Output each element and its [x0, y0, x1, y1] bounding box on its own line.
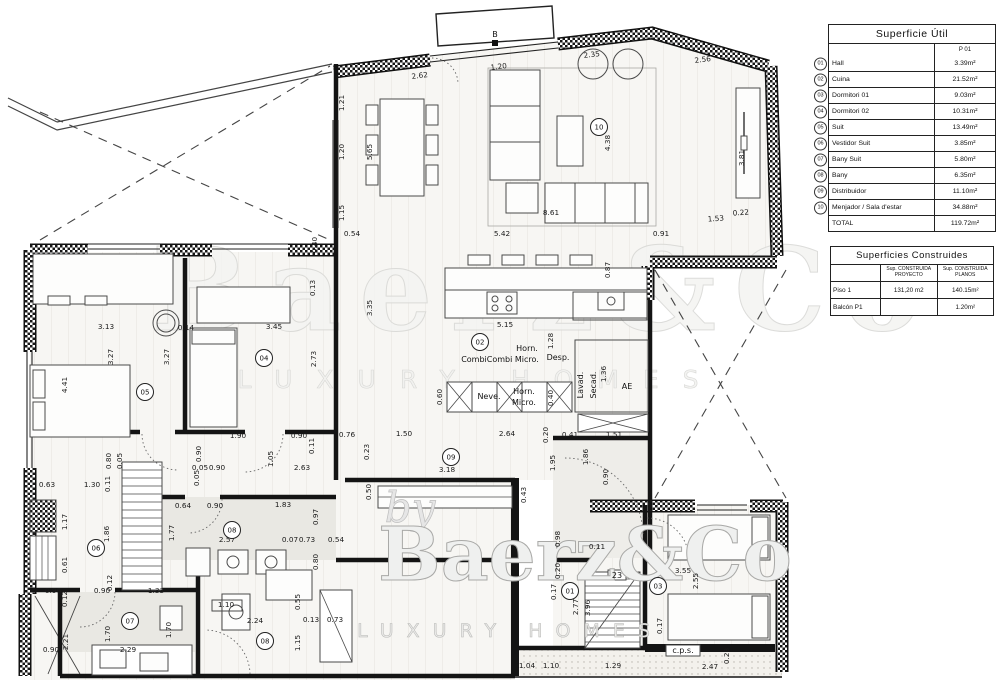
room-number-badge: 02 [814, 73, 827, 86]
dimension-label: 0.60 [435, 389, 444, 406]
dimension-label: 3.55 [675, 566, 691, 575]
column-header: Sup. CONSTRUIDA PROYECTO [880, 265, 936, 281]
room-area-cell: 9.03m² [934, 88, 995, 103]
dimension-label: 2.55 [691, 573, 700, 589]
dimension-label: 1.86 [581, 449, 590, 466]
dimension-label: 0.40 [546, 390, 555, 407]
dimension-label: 1.21 [337, 95, 346, 111]
room-area-cell: 21.52m² [934, 72, 995, 87]
dimension-label: 1.95 [548, 455, 557, 471]
dimension-label: 5.15 [497, 320, 513, 329]
fixture-label: Micro. [512, 398, 536, 407]
proyecto-cell: 131,20 m2 [880, 282, 936, 298]
dimension-label: 5.42 [494, 229, 510, 238]
room-number-label: 01 [566, 588, 575, 596]
table-row: 08Bany6.35m² [829, 167, 995, 183]
fixture-label: Desp. [547, 353, 570, 362]
tv-unit [736, 88, 760, 198]
dimension-label: 0.90 [601, 469, 610, 486]
superficie-util-table: Superficie Útil P 01 01Hall3.39m²02Cuina… [812, 24, 996, 232]
bathtub [92, 645, 192, 675]
coffee-table [557, 116, 583, 166]
dimension-label: 0.11 [103, 476, 112, 492]
dimension-label: 2.47 [702, 662, 719, 671]
table-title: Superficie Útil [829, 25, 995, 44]
fixture-label: B [492, 30, 498, 39]
dimension-label: 1.20 [337, 144, 346, 161]
dimension-label: 0.80 [311, 554, 320, 571]
dimension-label: 3.45 [266, 322, 282, 331]
fixture-label: c.p.s. [672, 646, 693, 655]
dimension-label: 8.61 [543, 208, 559, 217]
room-area-cell: 3.85m² [934, 136, 995, 151]
dimension-label: 0.55 [293, 594, 302, 610]
row-name-cell: Balcón P1 [831, 299, 880, 315]
dimension-label: 0.07 [282, 535, 299, 544]
room-name-cell: Vestidor Suit [829, 136, 934, 151]
room-number-badge: 04 [814, 105, 827, 118]
dimension-label: 0.63 [39, 480, 56, 489]
dimension-label: 0.12 [60, 591, 69, 607]
room-number-badge: 09 [814, 185, 827, 198]
dimension-label: 0.90 [94, 586, 111, 595]
dimension-label: 1.30 [84, 480, 101, 489]
dimension-label: 0.90 [43, 645, 60, 654]
room-area-cell: 3.39m² [934, 56, 995, 71]
dimension-label: 4.38 [603, 135, 612, 152]
column-header: Sup. CONSTRUIDA PLANOS [937, 265, 993, 281]
dimension-label: 3.81 [737, 150, 746, 166]
table-row: Balcón P11.20m² [831, 298, 993, 315]
room-name-cell: Cuina [829, 72, 934, 87]
dimension-label: 0.17 [655, 618, 664, 635]
room-number-label: 08 [228, 527, 237, 535]
dimension-label: 1.90 [230, 431, 247, 440]
dimension-label: 0.28 [722, 648, 731, 665]
table-row: 06Vestidor Suit3.85m² [829, 135, 995, 151]
table-row: 09Distribuidor11.10m² [829, 183, 995, 199]
room-name-cell: Dormitori 02 [829, 104, 934, 119]
dimension-label: 2.64 [499, 429, 516, 438]
watermark-tagline: LUXURY HOMES [357, 620, 663, 642]
total-row: TOTAL 119.72m² [829, 215, 995, 231]
dimension-label: 0.90 [209, 463, 226, 472]
dimension-label: 1.15 [337, 205, 346, 221]
dimension-label: 0.13 [303, 615, 320, 624]
floor-plan-page: Baerz&Co LUXURY HOMES [0, 0, 1000, 686]
dimension-label: 3.27 [162, 349, 171, 366]
fixture-label: Secad. [589, 372, 598, 399]
header-spacer [829, 44, 934, 56]
room-name-cell: Menjador / Sala d'estar [829, 200, 934, 215]
table-row: 02Cuina21.52m² [829, 71, 995, 87]
room-number-badge: 05 [814, 121, 827, 134]
dimension-label: 1.50 [396, 429, 413, 438]
dimension-label: 0.20 [541, 427, 550, 444]
dimension-label: 0.64 [175, 501, 192, 510]
dimension-label: 0.20 [553, 563, 562, 580]
dimension-label: 2.77 [571, 599, 580, 616]
dimension-label: 0.87 [603, 262, 612, 279]
room-area-cell: 6.35m² [934, 168, 995, 183]
dimension-label: 0.54 [328, 535, 345, 544]
dimension-label: 1.51 [606, 430, 622, 439]
dimension-label: 1.28 [546, 333, 555, 350]
dimension-label: 5.65 [365, 144, 374, 160]
dimension-label: 3.13 [98, 322, 115, 331]
room-number-badge: 08 [814, 169, 827, 182]
room-number-label: 09 [447, 454, 456, 462]
radiator [30, 500, 56, 580]
dimension-label: 0.76 [339, 430, 356, 439]
dimension-label: 3.18 [439, 465, 456, 474]
bedroom02-desk [197, 287, 290, 323]
table-header-row: P 01 [829, 44, 995, 56]
room-number-label: 08 [261, 638, 270, 646]
dimension-label: 0.90 [207, 501, 224, 510]
dimension-label: 2.63 [294, 463, 311, 472]
superficies-construides-table: Superficies Construides Sup. CONSTRUIDA … [830, 246, 994, 316]
fixture-label: CombiCombi Micro. [461, 355, 539, 364]
dimension-label: 0.11 [589, 542, 605, 551]
room-number-badge: 06 [814, 137, 827, 150]
room-number-label: 02 [476, 339, 485, 347]
room-number-label: 06 [92, 545, 101, 553]
bedroom02-bed [190, 328, 237, 427]
room-number-label: 05 [141, 389, 150, 397]
dimension-label: 1.15 [293, 635, 302, 651]
dimension-label: 4.41 [60, 377, 69, 393]
dimension-label: 0.40 [310, 237, 319, 254]
planos-cell: 1.20m² [937, 299, 993, 315]
room-number-label: 07 [126, 618, 135, 626]
room-area-cell: 5.80m² [934, 152, 995, 167]
room-number-badge: 10 [814, 201, 827, 214]
room-number-label: 10 [595, 124, 604, 132]
room-name-cell: Bany Suit [829, 152, 934, 167]
header-spacer [831, 265, 880, 281]
table-body: 01Hall3.39m²02Cuina21.52m²03Dormitori 01… [829, 56, 995, 215]
dimension-label: 1.83 [275, 500, 292, 509]
table-row: 05Suit13.49m² [829, 119, 995, 135]
table-row: 07Bany Suit5.80m² [829, 151, 995, 167]
dimension-label: 1.77 [167, 525, 176, 542]
dimension-label: 0.05 [192, 470, 201, 486]
dimension-label: 2.29 [120, 645, 137, 654]
dimension-label: 1.70 [103, 626, 112, 643]
total-value: 119.72m² [934, 216, 995, 231]
dimension-label: 0.91 [653, 229, 669, 238]
room-area-cell: 13.49m² [934, 120, 995, 135]
planos-cell: 140.15m² [937, 282, 993, 298]
dimension-label: 0.17 [549, 584, 558, 601]
room-area-cell: 10.31m² [934, 104, 995, 119]
room-number-badge: 01 [814, 57, 827, 70]
dimension-label: 2.21 [61, 634, 70, 650]
dimension-label: 0.11 [307, 438, 316, 454]
dimension-label: 0.73 [327, 615, 344, 624]
room-name-cell: Distribuidor [829, 184, 934, 199]
table-row: 03Dormitori 019.03m² [829, 87, 995, 103]
room-name-cell: Bany [829, 168, 934, 183]
dimension-label: 1.29 [605, 661, 622, 670]
dimension-label: 0.96 [45, 586, 62, 595]
dimension-label: 0.98 [553, 531, 562, 548]
dimension-label: 0.97 [311, 509, 320, 526]
room-area-cell: 34.88m² [934, 200, 995, 215]
room-name-cell: Hall [829, 56, 934, 71]
wall-marker [492, 40, 498, 46]
dimension-label: 1.04 [519, 661, 536, 670]
dimension-label: 0.13 [308, 280, 317, 297]
dimension-label: 0.43 [519, 487, 528, 504]
dimension-label: 0.73 [299, 535, 316, 544]
fixture-label: Horn. [513, 387, 535, 396]
room-number-label: 04 [260, 355, 269, 363]
table-title: Superficies Construides [831, 247, 993, 265]
dimension-label: 2.73 [309, 351, 318, 368]
dimension-label: 1.70 [164, 622, 173, 639]
dimension-label: 1.33 [148, 586, 165, 595]
column-header: P 01 [934, 44, 995, 56]
dimension-label: 3.35 [365, 300, 374, 316]
dimension-label: 0.05 [115, 453, 124, 469]
dimension-label: 1.10 [543, 661, 560, 670]
suite-bed [30, 365, 130, 437]
fixture-label: Horn. [516, 344, 538, 353]
dimension-label: 0.61 [60, 557, 69, 573]
dimension-label: 0.80 [104, 453, 113, 470]
dimension-label: 0.54 [344, 229, 361, 238]
dimension-label: 1.36 [599, 366, 608, 383]
table-row: 04Dormitori 0210.31m² [829, 103, 995, 119]
table-row: Piso 1131,20 m2140.15m² [831, 281, 993, 298]
row-name-cell: Piso 1 [831, 282, 880, 298]
dining-table [366, 99, 438, 196]
dimension-label: 0.41 [562, 430, 578, 439]
fixture-label: Neve. [477, 392, 500, 401]
watermark-brand: Baerz&Co [378, 512, 792, 598]
room-number-badge: 07 [814, 153, 827, 166]
room-area-cell: 11.10m² [934, 184, 995, 199]
drawer [85, 296, 107, 305]
dimension-label: 0.90 [194, 446, 203, 463]
dimension-label: 2.24 [247, 616, 264, 625]
proyecto-cell [880, 299, 936, 315]
dimension-label: 0.22 [732, 207, 749, 217]
dimension-label: 0.14 [178, 323, 195, 332]
table-body: Piso 1131,20 m2140.15m²Balcón P11.20m² [831, 281, 993, 315]
total-label: TOTAL [829, 216, 934, 231]
dimension-label: 0.23 [362, 444, 371, 461]
drawer [48, 296, 70, 305]
dimension-label: 1.86 [102, 526, 111, 543]
fixture-label: 23 [612, 571, 622, 580]
room-number-badge: 03 [814, 89, 827, 102]
dimension-label: 0.50 [364, 484, 373, 501]
fixture-label: AE [622, 382, 633, 391]
room-name-cell: Suit [829, 120, 934, 135]
dimension-label: 1.05 [266, 451, 275, 467]
dimension-label: 0.90 [291, 431, 308, 440]
dimension-label: 3.96 [583, 600, 592, 617]
table-header-row: Sup. CONSTRUIDA PROYECTO Sup. CONSTRUIDA… [831, 265, 993, 281]
table-row: 01Hall3.39m² [829, 56, 995, 71]
dimension-label: 1.10 [218, 600, 235, 609]
fixture-label: Lavad. [576, 372, 585, 399]
dimension-label: 3.27 [106, 349, 115, 366]
table-row: 10Menjador / Sala d'estar34.88m² [829, 199, 995, 215]
dimension-label: 1.53 [707, 213, 724, 223]
dimension-label: 1.17 [60, 514, 69, 531]
room-number-label: 03 [654, 583, 663, 591]
room-name-cell: Dormitori 01 [829, 88, 934, 103]
linen-closet [122, 462, 162, 590]
